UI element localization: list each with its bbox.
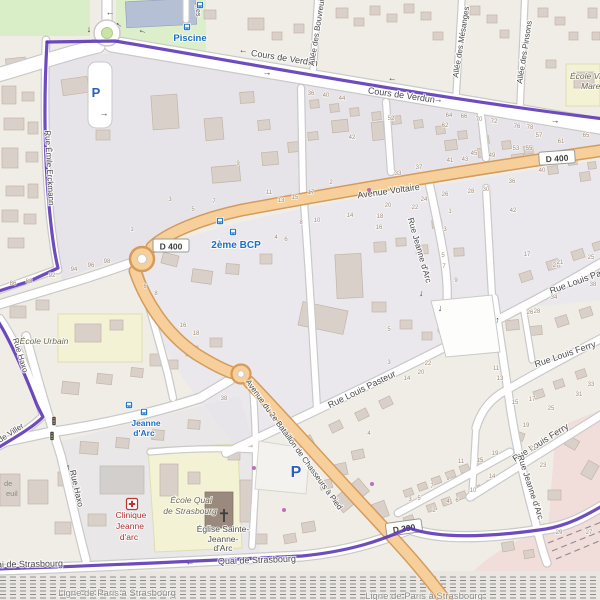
transit-stop-label: Jeanne [131, 418, 161, 428]
building [258, 119, 271, 130]
house-number: 15 [477, 458, 484, 464]
house-number: 20 [418, 370, 425, 376]
house-number: 10 [470, 488, 477, 494]
house-number: 88 [26, 279, 33, 285]
building [80, 441, 99, 454]
roundabout-island [138, 255, 147, 264]
building [588, 161, 597, 169]
route-badge: D 400 [153, 239, 189, 252]
parking-icon: P [291, 464, 302, 481]
building [555, 17, 565, 25]
building [336, 8, 348, 18]
building [55, 522, 71, 534]
clinic-label: Clinique [116, 510, 147, 520]
building [396, 238, 406, 247]
building [188, 420, 201, 430]
building [502, 140, 512, 149]
house-number: 13 [497, 376, 504, 382]
building [61, 381, 79, 395]
building [211, 165, 240, 183]
building [28, 480, 48, 504]
building [8, 238, 24, 248]
building [370, 6, 380, 15]
railway-name-label: Ligne de Paris à Strasbourg [365, 591, 483, 600]
transit-stop-label: d'Arc [133, 428, 155, 438]
house-number: 11 [266, 190, 273, 196]
poi-dot [370, 482, 374, 486]
traffic-signal-icon [52, 417, 56, 426]
building [579, 171, 590, 181]
building [433, 32, 443, 40]
building [2, 86, 16, 104]
house-number: 19 [523, 423, 530, 429]
building [387, 14, 397, 22]
building [97, 373, 113, 385]
building [454, 248, 464, 257]
house-number: 14 [404, 376, 411, 382]
building [530, 325, 543, 335]
church-label: d'Arc [213, 543, 233, 553]
railway-name-label: Ligne de Paris à Strasbourg [58, 588, 176, 599]
building [538, 8, 548, 17]
building [110, 320, 123, 330]
transit-stop-label: 2ème BCP [211, 240, 261, 251]
bus-stop-icon [140, 408, 147, 415]
church-label: Église Sainte- [197, 524, 250, 534]
house-number: 42 [510, 208, 517, 214]
house-number: 70 [476, 117, 483, 123]
building [330, 104, 340, 113]
building [523, 549, 534, 559]
house-number: 98 [104, 259, 111, 265]
house-number: 16 [180, 323, 187, 329]
house-number: 22 [412, 205, 419, 211]
street-label: Quai de Strasbourg [0, 558, 63, 569]
school-label: de Strasbourg [163, 506, 217, 516]
building [248, 18, 264, 30]
label-fragment: de [4, 479, 12, 488]
building [160, 464, 178, 496]
poi-dot [282, 508, 286, 512]
building [592, 32, 600, 40]
building [204, 10, 216, 19]
building [261, 151, 278, 165]
building [116, 438, 130, 449]
clinic-label: Jeanne [116, 521, 144, 531]
building [100, 466, 144, 494]
house-number: 43 [462, 157, 469, 163]
house-number: 28 [468, 189, 475, 195]
building [188, 472, 200, 484]
building [501, 541, 514, 552]
building [10, 306, 26, 318]
house-number: 38 [221, 396, 228, 402]
oneway-arrow-icon: ↓ [87, 24, 92, 34]
house-number: 14 [347, 213, 354, 219]
house-number: 37 [416, 165, 423, 171]
house-number: 36 [308, 91, 315, 97]
oneway-arrow-icon: ← [387, 72, 397, 83]
house-number: 21 [557, 260, 564, 266]
oneway-arrow-icon: → [433, 93, 443, 104]
house-number: 23 [540, 463, 547, 469]
house-number: 65 [583, 133, 590, 139]
clinic-label: d'arc [120, 532, 139, 542]
building [374, 242, 387, 253]
roundabout-island [102, 28, 113, 39]
building [500, 30, 509, 38]
building [414, 119, 424, 128]
building [372, 112, 382, 121]
route-badge-text: D 400 [545, 153, 569, 165]
oneway-arrow-icon: → [100, 108, 109, 118]
route-badge-text: D 400 [160, 242, 183, 252]
map-canvas[interactable]: D 390 Cours de VerdunCours de VerdunAven… [0, 0, 600, 600]
building [6, 186, 24, 196]
building [548, 490, 561, 500]
house-number: 53 [513, 146, 520, 152]
traffic-signal-icon [50, 432, 54, 441]
building [2, 148, 18, 168]
house-number: 27 [586, 530, 593, 536]
house-number: 14 [489, 474, 496, 480]
building [404, 4, 414, 13]
house-number: 86 [10, 281, 17, 287]
building [4, 118, 24, 130]
house-number: 34 [551, 295, 558, 301]
building [569, 32, 578, 40]
building [546, 60, 556, 68]
house-number: 76 [514, 124, 521, 130]
school-label: École Urbain [20, 336, 69, 346]
house-number: 94 [71, 267, 78, 273]
house-number: 78 [527, 125, 534, 131]
house-number: 55 [526, 146, 533, 152]
building [421, 12, 431, 20]
house-number: 72 [491, 119, 498, 125]
oneway-arrow-icon: ↓ [438, 303, 443, 313]
transit-stop-label: Piscine [173, 33, 206, 44]
house-number: 64 [446, 113, 453, 119]
house-number: 45 [471, 151, 478, 157]
school-label: Mareuil [581, 81, 600, 91]
bus-stop-icon [229, 228, 236, 235]
building [2, 210, 18, 222]
oneway-arrow-icon: → [262, 66, 272, 77]
house-number: 18 [377, 214, 384, 220]
building [444, 139, 457, 150]
house-number: 36 [509, 179, 516, 185]
bus-stop-icon [216, 217, 223, 224]
building [487, 15, 497, 23]
poi-dot [367, 188, 371, 192]
house-number: 17 [524, 252, 531, 258]
building [272, 32, 282, 40]
building [204, 117, 224, 140]
house-number: 17 [308, 190, 315, 196]
building [331, 119, 348, 133]
parking-icon: P [92, 85, 101, 100]
house-number: 13 [278, 198, 285, 204]
building [310, 100, 320, 109]
building [24, 214, 36, 224]
route-badge: D 400 [539, 150, 576, 165]
house-number: 61 [558, 139, 565, 145]
house-number: 49 [489, 153, 496, 159]
oneway-arrow-icon: → [550, 114, 560, 125]
building [36, 300, 49, 310]
oneway-arrow-icon: ← [238, 44, 248, 55]
building [372, 302, 386, 312]
building [470, 6, 480, 15]
building [547, 165, 558, 174]
building [210, 338, 222, 347]
building [88, 514, 106, 526]
house-number: 18 [193, 331, 200, 337]
building [294, 24, 304, 33]
house-number: 15 [512, 400, 519, 406]
house-number: 29 [556, 530, 563, 536]
building [240, 92, 255, 104]
building [506, 319, 520, 330]
house-number: 52 [388, 116, 395, 122]
poi-dot [252, 466, 256, 470]
building [26, 152, 38, 162]
house-number: 66 [461, 114, 468, 120]
building [226, 264, 240, 275]
bus-stop-icon [183, 23, 190, 30]
building [61, 76, 89, 95]
building [422, 332, 432, 340]
house-number: 38 [590, 282, 597, 288]
bus-stop-icon [196, 1, 203, 8]
house-number: 62 [442, 123, 449, 129]
house-number: 25 [588, 255, 595, 261]
house-number: 20 [385, 203, 392, 209]
building [400, 320, 412, 329]
label-fragment: euil [6, 489, 18, 498]
house-number: 42 [349, 135, 356, 141]
oneway-arrow-icon: ← [106, 7, 115, 17]
house-number: 40 [323, 93, 330, 99]
road [301, 88, 303, 192]
building [588, 8, 597, 18]
house-number: 15 [292, 195, 299, 201]
building [301, 521, 316, 533]
house-number: 33 [588, 382, 595, 388]
building [260, 254, 272, 264]
building [151, 94, 179, 130]
house-number: 24 [421, 197, 428, 203]
house-number: 30 [483, 187, 490, 193]
house-number: 11 [458, 459, 465, 465]
house-number: 44 [339, 96, 346, 102]
building [350, 108, 360, 117]
house-number: 96 [88, 263, 95, 269]
school-label: École Quai [170, 495, 213, 505]
house-number: 17 [529, 397, 536, 403]
park-area [0, 0, 90, 36]
house-number: 10 [314, 218, 321, 224]
building [75, 324, 101, 342]
house-number: 22 [425, 361, 432, 367]
building [28, 122, 38, 134]
mini-roundabout-island [238, 371, 244, 377]
building [308, 131, 319, 140]
house-number: 57 [536, 133, 543, 139]
house-number: 40 [539, 168, 546, 174]
building [371, 121, 385, 140]
school-label: École Villebois [570, 71, 600, 81]
house-number: 26 [442, 192, 449, 198]
building [28, 184, 38, 198]
house-number: 92 [49, 273, 56, 279]
building [458, 130, 468, 139]
house-number: 11 [493, 366, 500, 372]
house-number: 16 [376, 225, 383, 231]
house-number: 41 [447, 158, 454, 164]
building [96, 130, 110, 140]
building [191, 269, 213, 285]
building [335, 253, 363, 298]
oneway-arrow-icon: ← [185, 557, 194, 567]
bus-stop-icon [125, 401, 132, 408]
house-number: 21 [530, 446, 537, 452]
house-number: 19 [492, 451, 499, 457]
house-number: 31 [576, 392, 583, 398]
map-viewport[interactable]: D 390 Cours de VerdunCours de VerdunAven… [0, 0, 600, 600]
building [131, 367, 144, 377]
building [283, 533, 296, 544]
house-number: 28 [534, 309, 541, 315]
house-number: 33 [395, 171, 402, 177]
hospital-icon [127, 499, 138, 510]
house-number: 25 [548, 406, 555, 412]
building [22, 92, 34, 101]
building [354, 18, 364, 26]
